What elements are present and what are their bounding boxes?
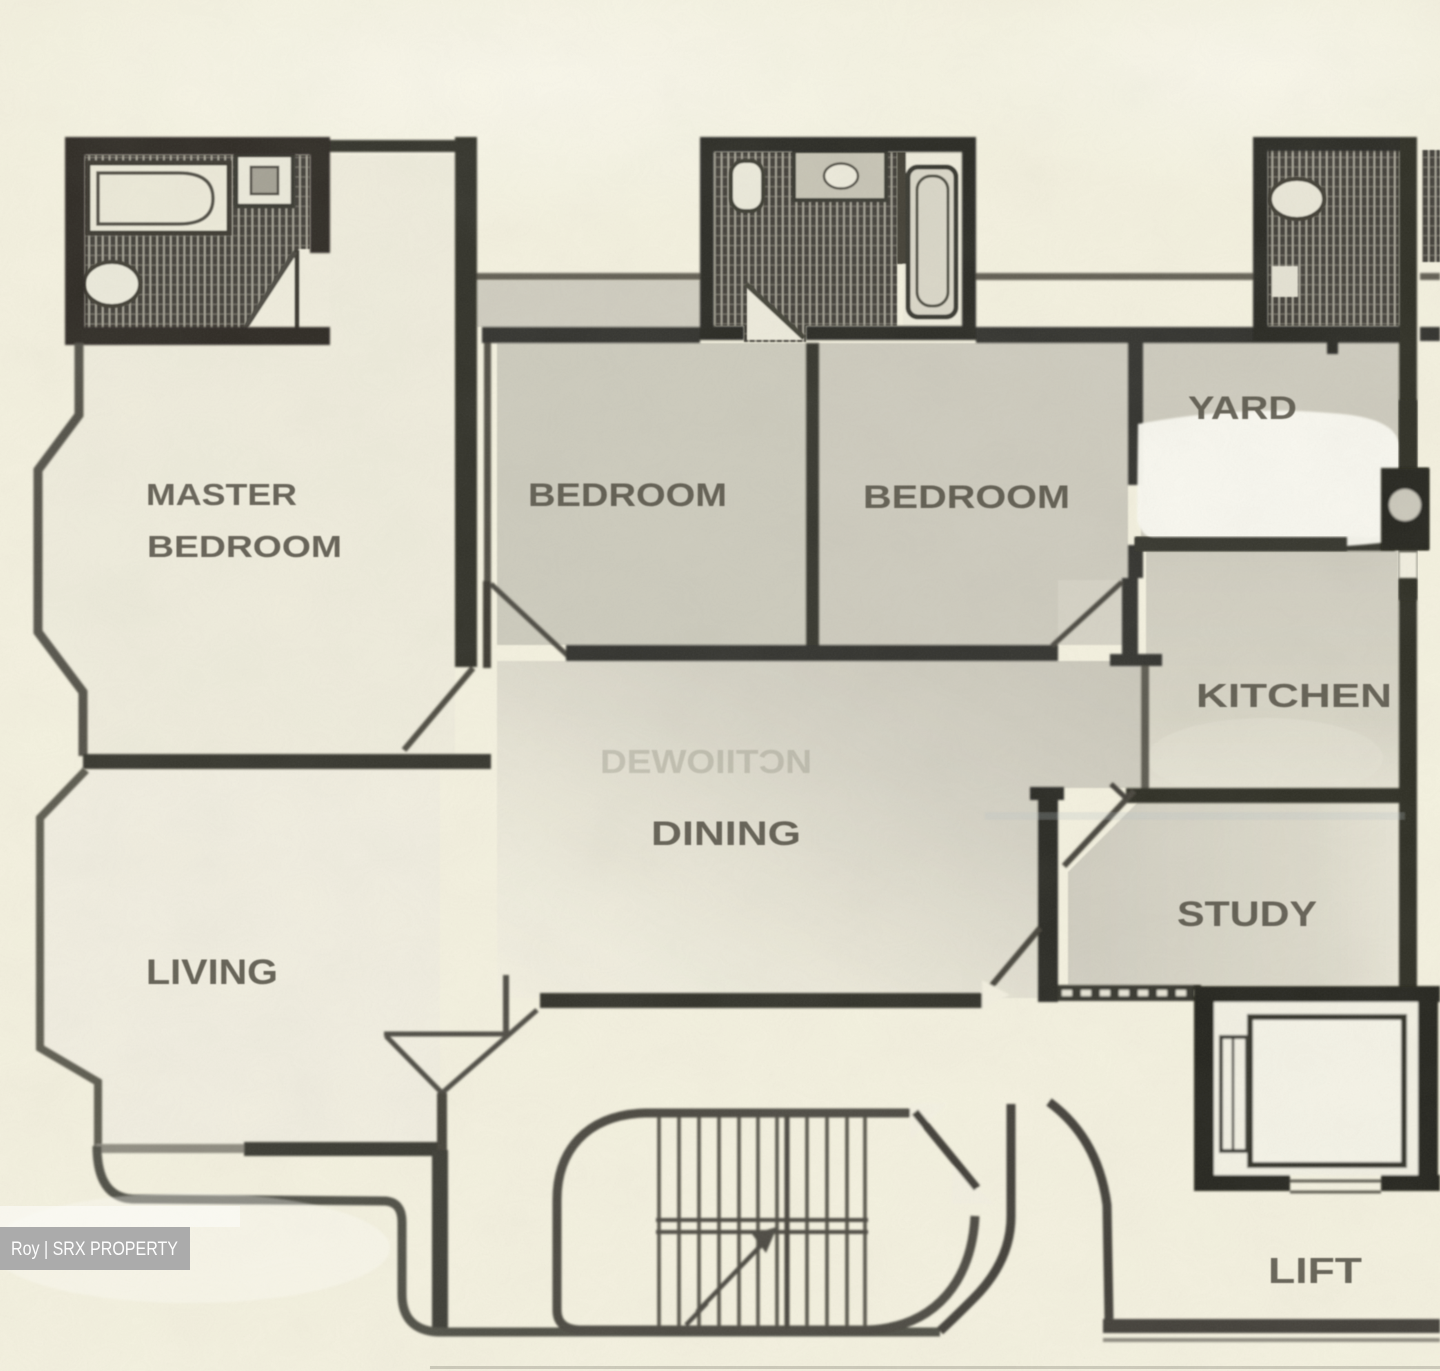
svg-text:Roy | SRX PROPERTY: Roy | SRX PROPERTY — [11, 1239, 178, 1260]
